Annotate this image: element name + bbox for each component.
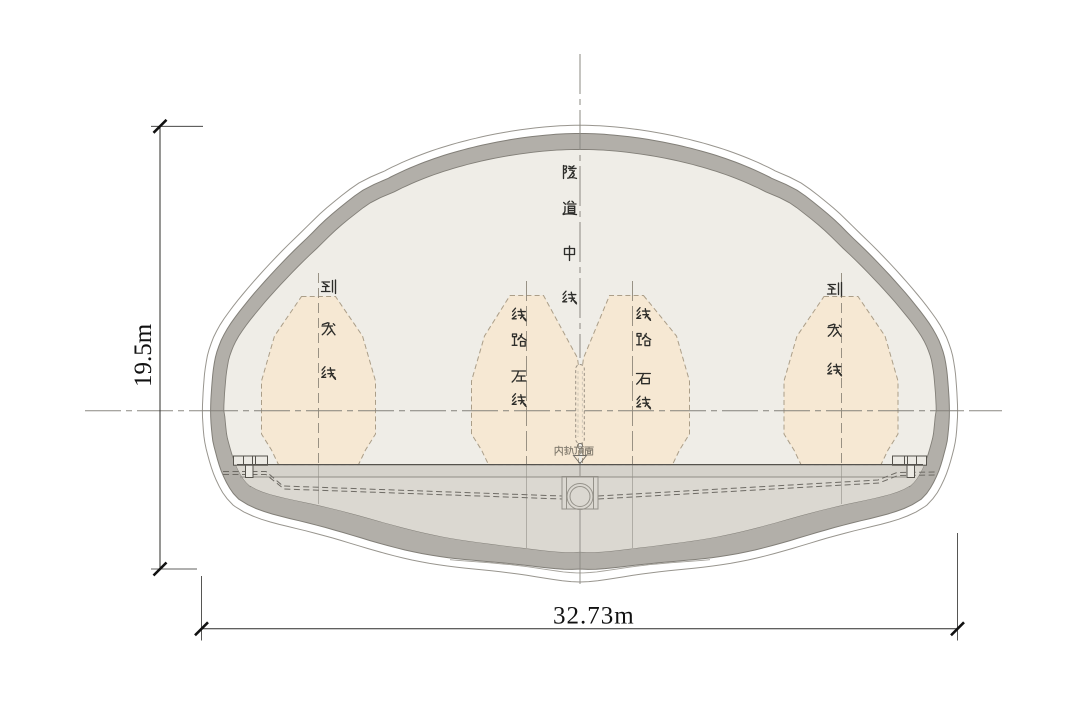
svg-text:19.5m: 19.5m [130,323,157,387]
svg-text:32.73m: 32.73m [553,603,635,630]
